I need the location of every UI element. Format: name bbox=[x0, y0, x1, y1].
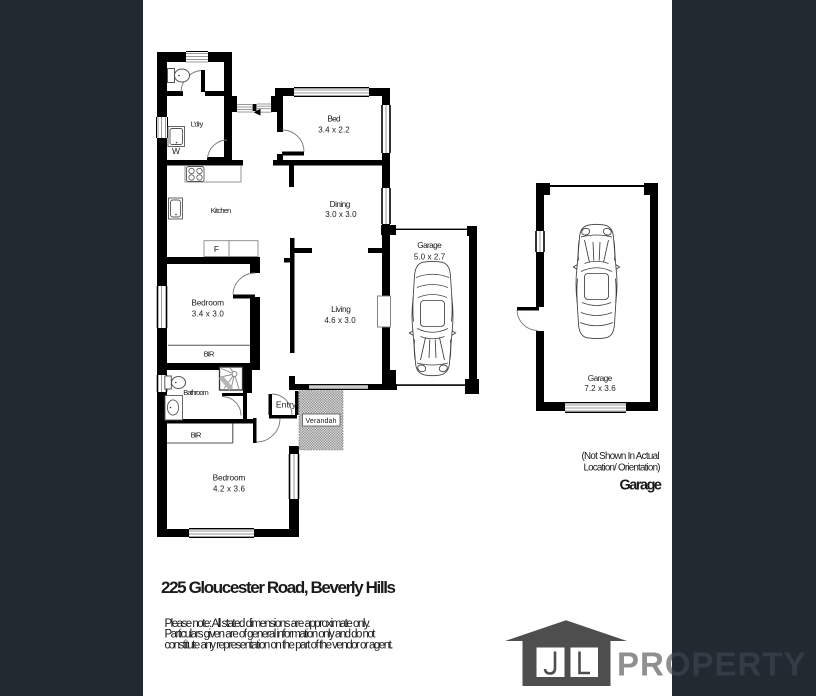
svg-text:Verandah: Verandah bbox=[306, 418, 337, 425]
svg-text:3.4 x 3.0: 3.4 x 3.0 bbox=[192, 309, 225, 318]
svg-text:Entry: Entry bbox=[276, 400, 297, 410]
svg-text:L'dry: L'dry bbox=[191, 120, 204, 129]
svg-text:3.0 x 3.0: 3.0 x 3.0 bbox=[325, 210, 357, 219]
svg-text:3.4 x 2.2: 3.4 x 2.2 bbox=[318, 126, 350, 135]
svg-text:Bathroom: Bathroom bbox=[183, 388, 209, 397]
svg-text:Bedroom: Bedroom bbox=[191, 298, 224, 308]
svg-text:BIR: BIR bbox=[191, 431, 202, 440]
svg-text:Kitchen: Kitchen bbox=[211, 206, 231, 215]
svg-text:BIR: BIR bbox=[204, 350, 215, 359]
svg-text:Dining: Dining bbox=[330, 199, 351, 209]
svg-text:Living: Living bbox=[331, 304, 351, 314]
svg-text:F: F bbox=[214, 244, 219, 254]
svg-text:(Not Shown In Actual: (Not Shown In Actual bbox=[582, 451, 660, 462]
svg-text:Location/ Orientation): Location/ Orientation) bbox=[584, 462, 661, 473]
svg-text:5.0 x 2.7: 5.0 x 2.7 bbox=[414, 252, 446, 261]
svg-text:Garage: Garage bbox=[417, 240, 442, 250]
svg-text:225 Gloucester Road, Beverly H: 225 Gloucester Road, Beverly Hills bbox=[161, 578, 396, 597]
svg-text:Garage: Garage bbox=[588, 373, 613, 383]
svg-text:Garage: Garage bbox=[620, 478, 663, 494]
svg-text:Bedroom: Bedroom bbox=[213, 473, 246, 483]
svg-text:4.6 x 3.0: 4.6 x 3.0 bbox=[324, 316, 356, 325]
svg-text:7.2 x 3.6: 7.2 x 3.6 bbox=[584, 384, 616, 393]
svg-text:Bed: Bed bbox=[327, 114, 341, 124]
svg-text:W: W bbox=[172, 146, 180, 156]
svg-text:constitute any representation: constitute any representation on the par… bbox=[165, 640, 394, 652]
svg-text:4.2 x 3.6: 4.2 x 3.6 bbox=[213, 485, 246, 494]
